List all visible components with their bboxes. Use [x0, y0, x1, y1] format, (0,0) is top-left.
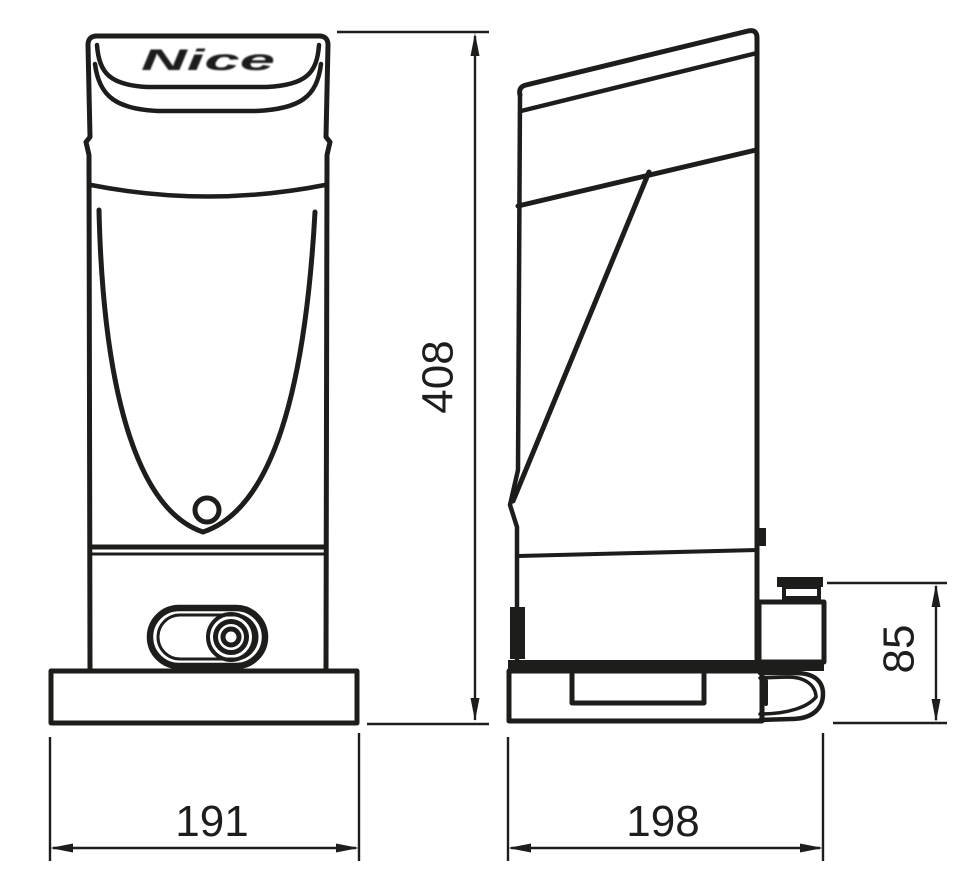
arrowhead-left — [508, 844, 531, 853]
side-right-latch-tab — [755, 528, 766, 546]
technical-drawing-page: Nice — [0, 0, 976, 886]
dim-label-rear-unit-height: 85 — [874, 625, 923, 674]
side-cover-diagonal-seam — [513, 172, 649, 501]
dimension-side-depth: 198 — [508, 733, 823, 861]
arrowhead-up — [932, 584, 941, 607]
side-view — [508, 31, 824, 721]
arrowhead-down — [471, 698, 480, 721]
arrowhead-right — [336, 844, 359, 853]
lock-keyhole — [223, 629, 239, 645]
dimension-rear-unit-height: 85 — [827, 583, 947, 723]
brand-logo: Nice — [141, 44, 275, 77]
front-cover-screw-hole — [195, 498, 219, 522]
front-cover-egg-curve — [99, 210, 315, 532]
front-base-plate — [51, 671, 357, 723]
side-lid-inner-line — [521, 53, 757, 111]
rear-pinion-cover-upper-curve — [760, 677, 816, 696]
arrowhead-up — [471, 33, 480, 56]
release-knob-neck — [784, 587, 819, 598]
rear-pinion-cover-lower-curve — [760, 697, 816, 714]
side-left-latch-tab — [510, 607, 525, 659]
side-base-slot — [572, 671, 704, 703]
side-rear-gearbox — [759, 602, 824, 662]
front-shoulder-curve — [91, 185, 325, 197]
dimension-front-width: 191 — [50, 733, 359, 861]
gate-motor-dimension-drawing: Nice — [0, 0, 976, 886]
front-view: Nice — [51, 36, 357, 723]
arrowhead-right — [800, 844, 823, 853]
dim-label-front-width: 191 — [175, 797, 248, 846]
arrowhead-down — [932, 699, 941, 722]
side-top-and-right-edge — [520, 31, 757, 660]
arrowhead-left — [50, 844, 73, 853]
side-split-line — [518, 550, 757, 556]
dim-label-overall-height: 408 — [413, 340, 462, 413]
front-body-outline — [86, 36, 330, 668]
dimension-overall-height: 408 — [337, 32, 489, 724]
dim-label-side-depth: 198 — [626, 797, 699, 846]
side-left-edge — [510, 95, 520, 660]
